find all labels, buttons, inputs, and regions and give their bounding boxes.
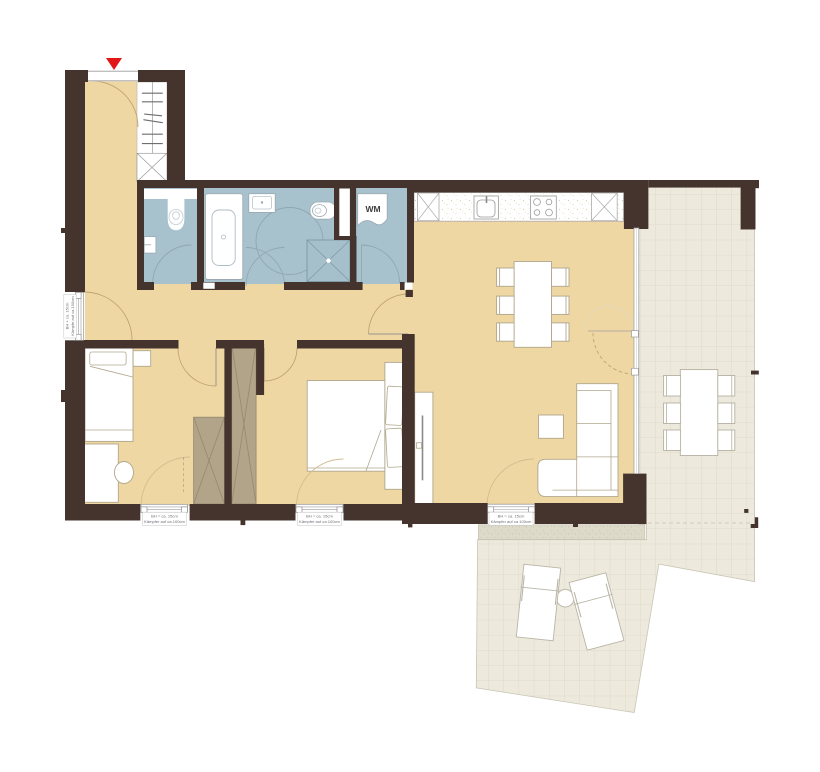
svg-text:Kämpfe auf ca.100cm: Kämpfe auf ca.100cm bbox=[70, 296, 75, 336]
svg-text:Kämpfer auf ca.100cm: Kämpfer auf ca.100cm bbox=[144, 519, 185, 524]
svg-text:BH = ca. 15cm: BH = ca. 15cm bbox=[151, 514, 178, 519]
svg-text:BH = ca. 15cm: BH = ca. 15cm bbox=[498, 513, 525, 518]
svg-text:BH + ca. 15cm: BH + ca. 15cm bbox=[65, 302, 70, 329]
svg-text:BH = ca. 15cm: BH = ca. 15cm bbox=[306, 514, 333, 519]
svg-text:WM: WM bbox=[365, 204, 380, 214]
svg-text:Kämpfer auf ca.100cm: Kämpfer auf ca.100cm bbox=[299, 519, 340, 524]
svg-text:Kämpfer auf ca 100cm: Kämpfer auf ca 100cm bbox=[491, 519, 532, 524]
